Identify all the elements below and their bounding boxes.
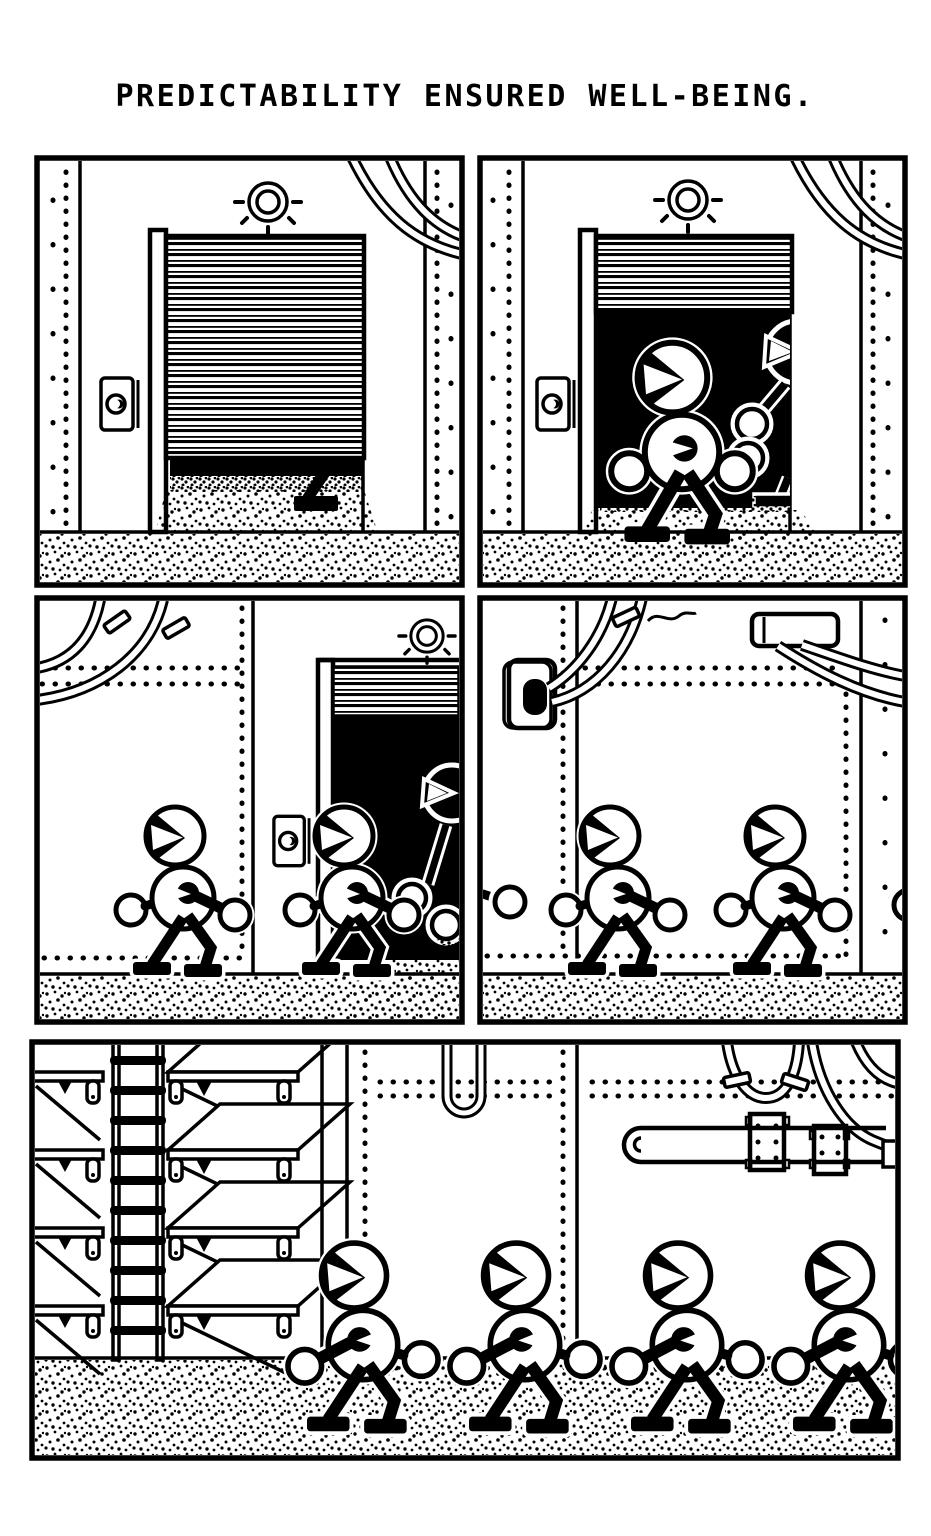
sand-mound bbox=[155, 490, 378, 533]
comic-artwork: PREDICTABILITY ENSURED WELL-BEING. bbox=[0, 0, 931, 1536]
call-button bbox=[537, 378, 574, 430]
comic-page: PREDICTABILITY ENSURED WELL-BEING. bbox=[0, 0, 931, 1536]
ground-stipple bbox=[483, 976, 902, 1019]
caption: PREDICTABILITY ENSURED WELL-BEING. bbox=[115, 79, 814, 114]
conduit-plate bbox=[504, 660, 555, 728]
ground-stipple bbox=[40, 976, 459, 1019]
ground-stipple bbox=[40, 534, 459, 582]
call-button bbox=[274, 816, 309, 865]
page-background bbox=[0, 0, 931, 1536]
ground-stipple bbox=[483, 534, 902, 582]
call-button bbox=[101, 378, 138, 430]
roller-door-closed bbox=[150, 230, 364, 532]
